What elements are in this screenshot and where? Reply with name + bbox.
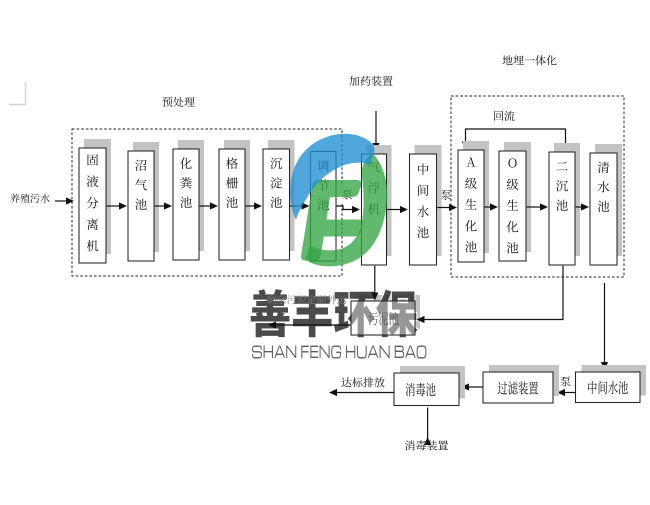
svg-text:化粪池: 化粪池 [180, 154, 193, 211]
svg-text:养殖污水: 养殖污水 [10, 190, 50, 205]
svg-text:清水池: 清水池 [597, 158, 610, 215]
svg-text:加药装置: 加药装置 [349, 73, 393, 89]
svg-text:泵: 泵 [560, 374, 571, 390]
svg-text:格栅池: 格栅池 [226, 154, 239, 211]
svg-text:过滤装置: 过滤装置 [497, 377, 538, 398]
svg-text:剩余污泥定期外运: 剩余污泥定期外运 [267, 292, 348, 307]
svg-text:达标排放: 达标排放 [341, 375, 385, 391]
svg-text:二沉池: 二沉池 [556, 157, 569, 214]
svg-text:沉淀池: 沉淀池 [270, 154, 283, 211]
svg-text:消毒池: 消毒池 [405, 379, 436, 400]
svg-text:O级生化池: O级生化池 [506, 154, 519, 257]
svg-text:地埋一体化: 地埋一体化 [502, 53, 557, 69]
svg-text:SHAN FENG HUAN BAO: SHAN FENG HUAN BAO [252, 339, 428, 363]
svg-text:沼气池: 沼气池 [135, 156, 148, 213]
svg-text:回流: 回流 [493, 108, 515, 124]
svg-text:预处理: 预处理 [162, 94, 195, 110]
svg-text:中间水池: 中间水池 [587, 377, 628, 398]
svg-text:泵: 泵 [441, 187, 452, 203]
svg-text:固液分离机: 固液分离机 [86, 151, 99, 255]
svg-text:污泥池: 污泥池 [368, 308, 399, 329]
